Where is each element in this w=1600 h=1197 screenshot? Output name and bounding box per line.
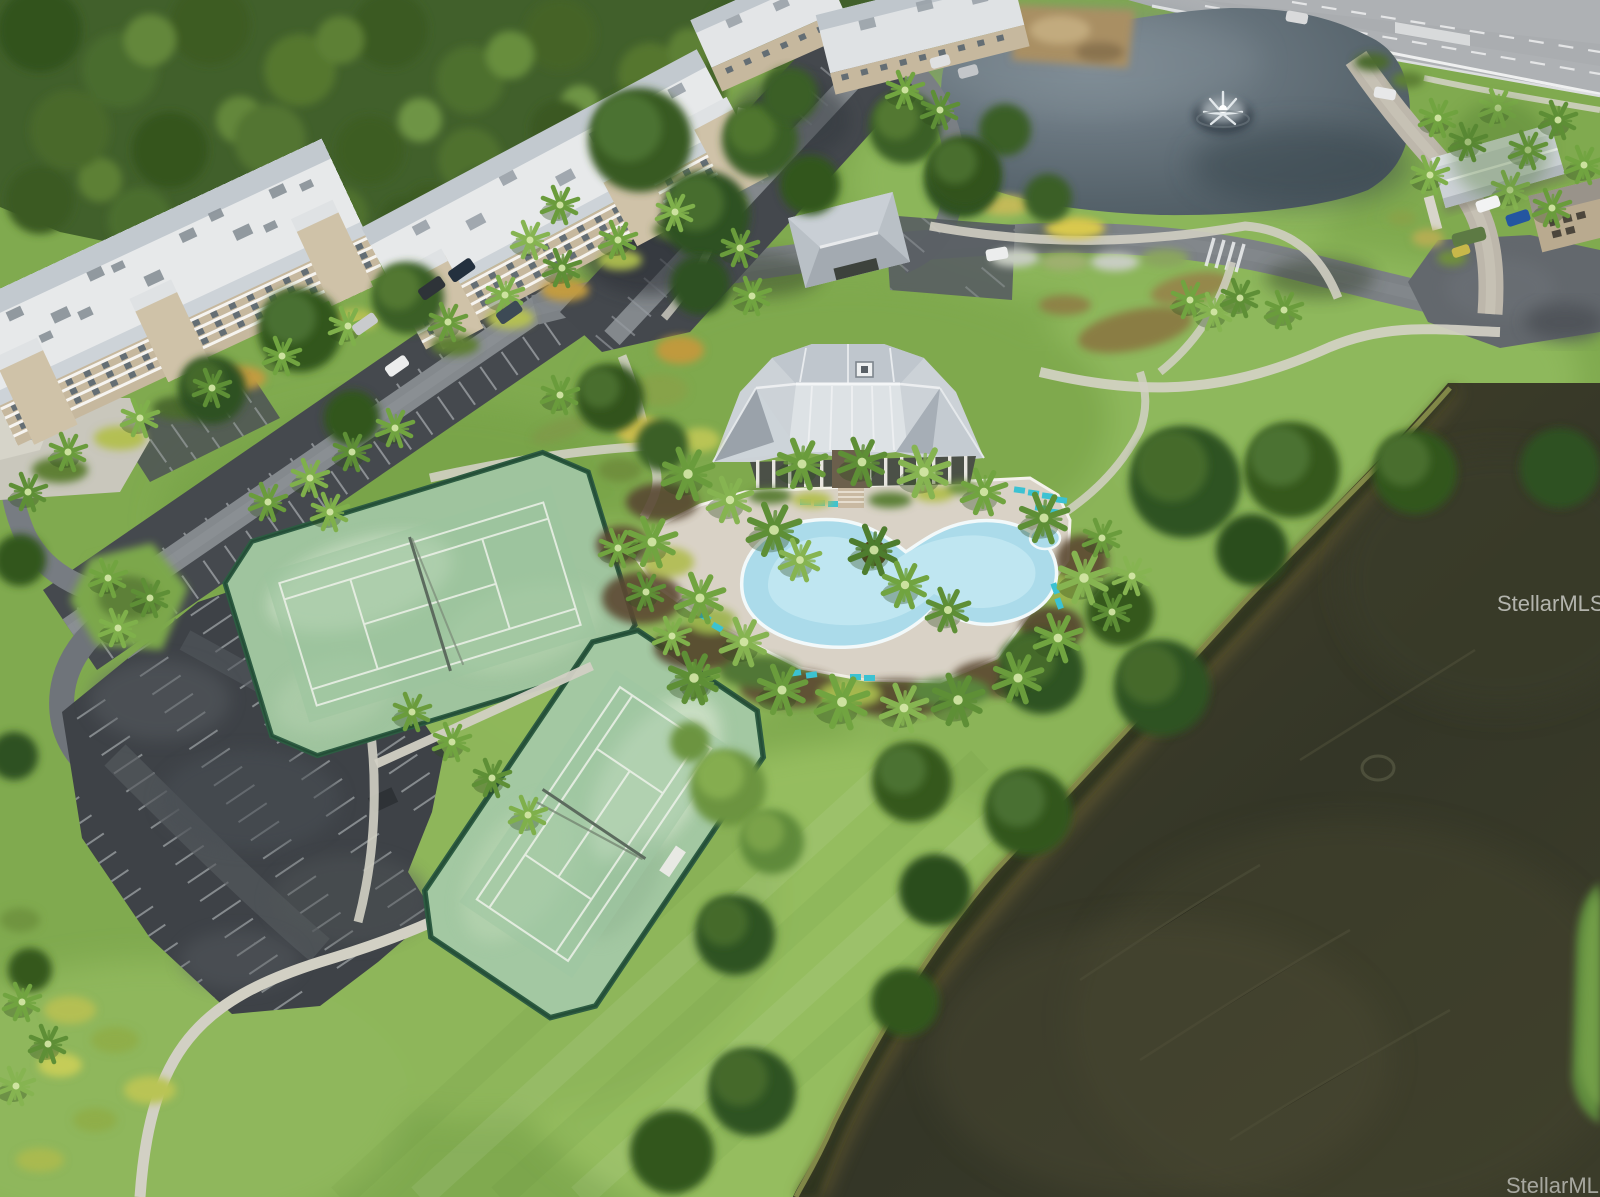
svg-text:StellarMLS: StellarMLS (1506, 1173, 1600, 1197)
svg-text:StellarMLS: StellarMLS (1497, 591, 1600, 616)
